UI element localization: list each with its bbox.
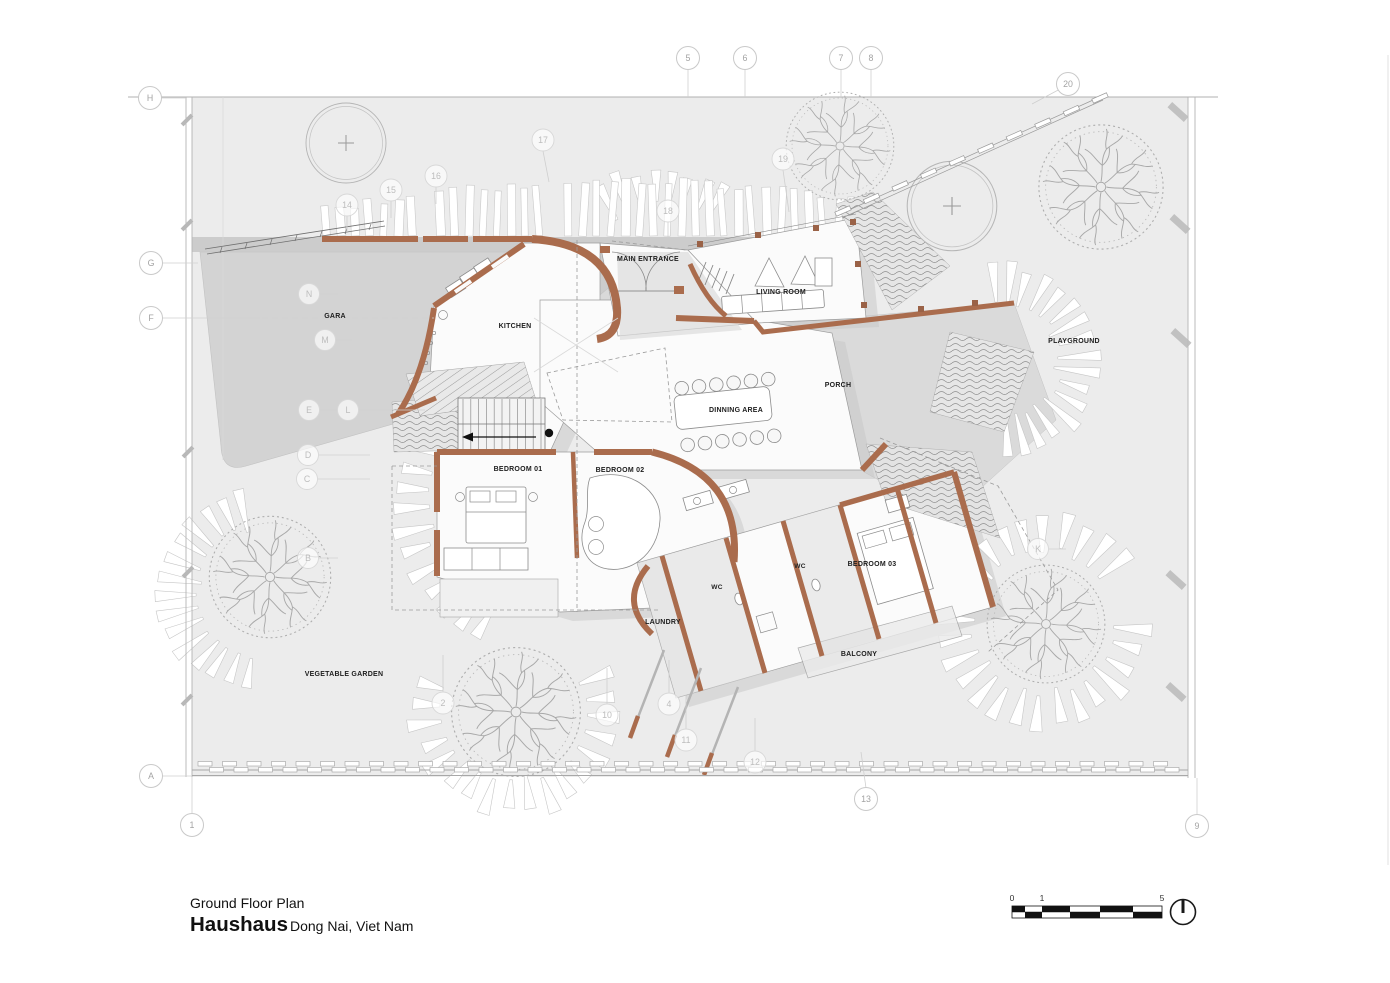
- svg-text:14: 14: [342, 200, 352, 210]
- stair-start-dot: [545, 429, 553, 437]
- grid-bubble-14: 14: [336, 194, 358, 216]
- project-location: Dong Nai, Viet Nam: [290, 918, 413, 934]
- grid-bubble-M: M: [315, 330, 336, 351]
- grid-bubble-20: 20: [1057, 73, 1080, 96]
- room-label-dinning-area: DINNING AREA: [709, 407, 763, 414]
- svg-text:C: C: [304, 474, 311, 484]
- grid-bubble-18: 18: [657, 200, 679, 222]
- svg-text:E: E: [306, 405, 312, 415]
- scale-label-5: 5: [1160, 893, 1165, 903]
- room-label-porch: PORCH: [825, 382, 852, 389]
- title-block: Ground Floor Plan Haushaus Dong Nai, Vie…: [190, 895, 413, 936]
- grid-bubble-13: 13: [855, 788, 878, 811]
- svg-text:F: F: [148, 313, 154, 323]
- svg-text:18: 18: [663, 206, 673, 216]
- svg-text:16: 16: [431, 171, 441, 181]
- grid-bubble-N: N: [299, 284, 320, 305]
- svg-text:13: 13: [861, 794, 871, 804]
- room-label-kitchen: KITCHEN: [499, 323, 532, 330]
- room-label-playground: PLAYGROUND: [1048, 338, 1100, 345]
- scale-bar: 0 1 5: [1010, 893, 1165, 918]
- svg-text:19: 19: [778, 154, 788, 164]
- grid-bubble-E: E: [299, 400, 320, 421]
- grid-bubble-6: 6: [734, 47, 757, 70]
- grid-bubble-7: 7: [830, 47, 853, 70]
- floor-plan-sheet: H G F A 1 5 6 7 8 20 9 14 15 16 17 18 19…: [0, 0, 1390, 983]
- scale-label-0: 0: [1010, 893, 1015, 903]
- svg-text:K: K: [1035, 544, 1041, 554]
- grid-bubble-C: C: [297, 469, 318, 490]
- svg-text:12: 12: [750, 757, 760, 767]
- svg-text:N: N: [306, 289, 312, 299]
- plan-title: Ground Floor Plan: [190, 895, 304, 911]
- project-name: Haushaus: [190, 913, 288, 936]
- svg-text:5: 5: [686, 53, 691, 63]
- svg-text:20: 20: [1063, 79, 1073, 89]
- room-label-wc-1: WC: [711, 584, 722, 591]
- room-label-bedroom-03: BEDROOM 03: [848, 561, 897, 568]
- grid-bubble-4: 4: [658, 693, 680, 715]
- svg-text:7: 7: [839, 53, 844, 63]
- svg-text:L: L: [346, 405, 351, 415]
- grid-bubble-9: 9: [1186, 815, 1209, 838]
- grid-bubble-F: F: [140, 307, 163, 330]
- room-label-wc-2: WC: [794, 563, 805, 570]
- grid-bubble-15: 15: [380, 179, 402, 201]
- room-label-balcony: BALCONY: [841, 651, 877, 658]
- room-label-vegetable-garden: VEGETABLE GARDEN: [305, 671, 384, 678]
- grid-bubble-8: 8: [860, 47, 883, 70]
- svg-text:M: M: [321, 335, 328, 345]
- svg-text:6: 6: [743, 53, 748, 63]
- grid-bubble-2: 2: [432, 692, 454, 714]
- svg-text:8: 8: [869, 53, 874, 63]
- room-label-bedroom-01: BEDROOM 01: [494, 466, 543, 473]
- grid-bubble-10: 10: [596, 704, 618, 726]
- grid-bubble-B: B: [298, 548, 319, 569]
- svg-text:H: H: [147, 93, 153, 103]
- grid-bubble-G: G: [140, 252, 163, 275]
- grid-bubble-K: K: [1028, 539, 1049, 560]
- grid-bubble-1: 1: [181, 814, 204, 837]
- svg-text:D: D: [305, 450, 311, 460]
- room-label-main-entrance: MAIN ENTRANCE: [617, 256, 679, 263]
- svg-text:B: B: [305, 553, 311, 563]
- svg-text:1: 1: [190, 820, 195, 830]
- svg-text:4: 4: [667, 699, 672, 709]
- grid-bubble-17: 17: [532, 129, 554, 151]
- svg-text:9: 9: [1195, 821, 1200, 831]
- svg-text:G: G: [148, 258, 155, 268]
- grid-bubble-19: 19: [772, 148, 794, 170]
- grid-bubble-11: 11: [675, 729, 697, 751]
- floor-plan-svg: H G F A 1 5 6 7 8 20 9 14 15 16 17 18 19…: [0, 0, 1390, 983]
- north-arrow-icon: [1171, 900, 1196, 925]
- grid-bubble-D: D: [298, 445, 319, 466]
- room-label-living-room: LIVING ROOM: [756, 289, 806, 296]
- scale-label-1: 1: [1040, 893, 1045, 903]
- room-label-gara: GARA: [324, 313, 346, 320]
- svg-text:2: 2: [441, 698, 446, 708]
- grid-bubble-5: 5: [677, 47, 700, 70]
- svg-text:15: 15: [386, 185, 396, 195]
- room-label-bedroom-02: BEDROOM 02: [596, 467, 645, 474]
- room-label-laundry: LAUNDRY: [645, 619, 681, 626]
- grid-bubble-16: 16: [425, 165, 447, 187]
- grid-bubble-12: 12: [744, 751, 766, 773]
- grid-bubble-L: L: [338, 400, 359, 421]
- svg-text:17: 17: [538, 135, 548, 145]
- svg-text:A: A: [148, 771, 154, 781]
- svg-text:10: 10: [602, 710, 612, 720]
- grid-bubble-H: H: [139, 87, 162, 110]
- svg-text:11: 11: [681, 735, 690, 745]
- bedroom01-terrace: [440, 579, 558, 617]
- grid-bubble-A: A: [140, 765, 163, 788]
